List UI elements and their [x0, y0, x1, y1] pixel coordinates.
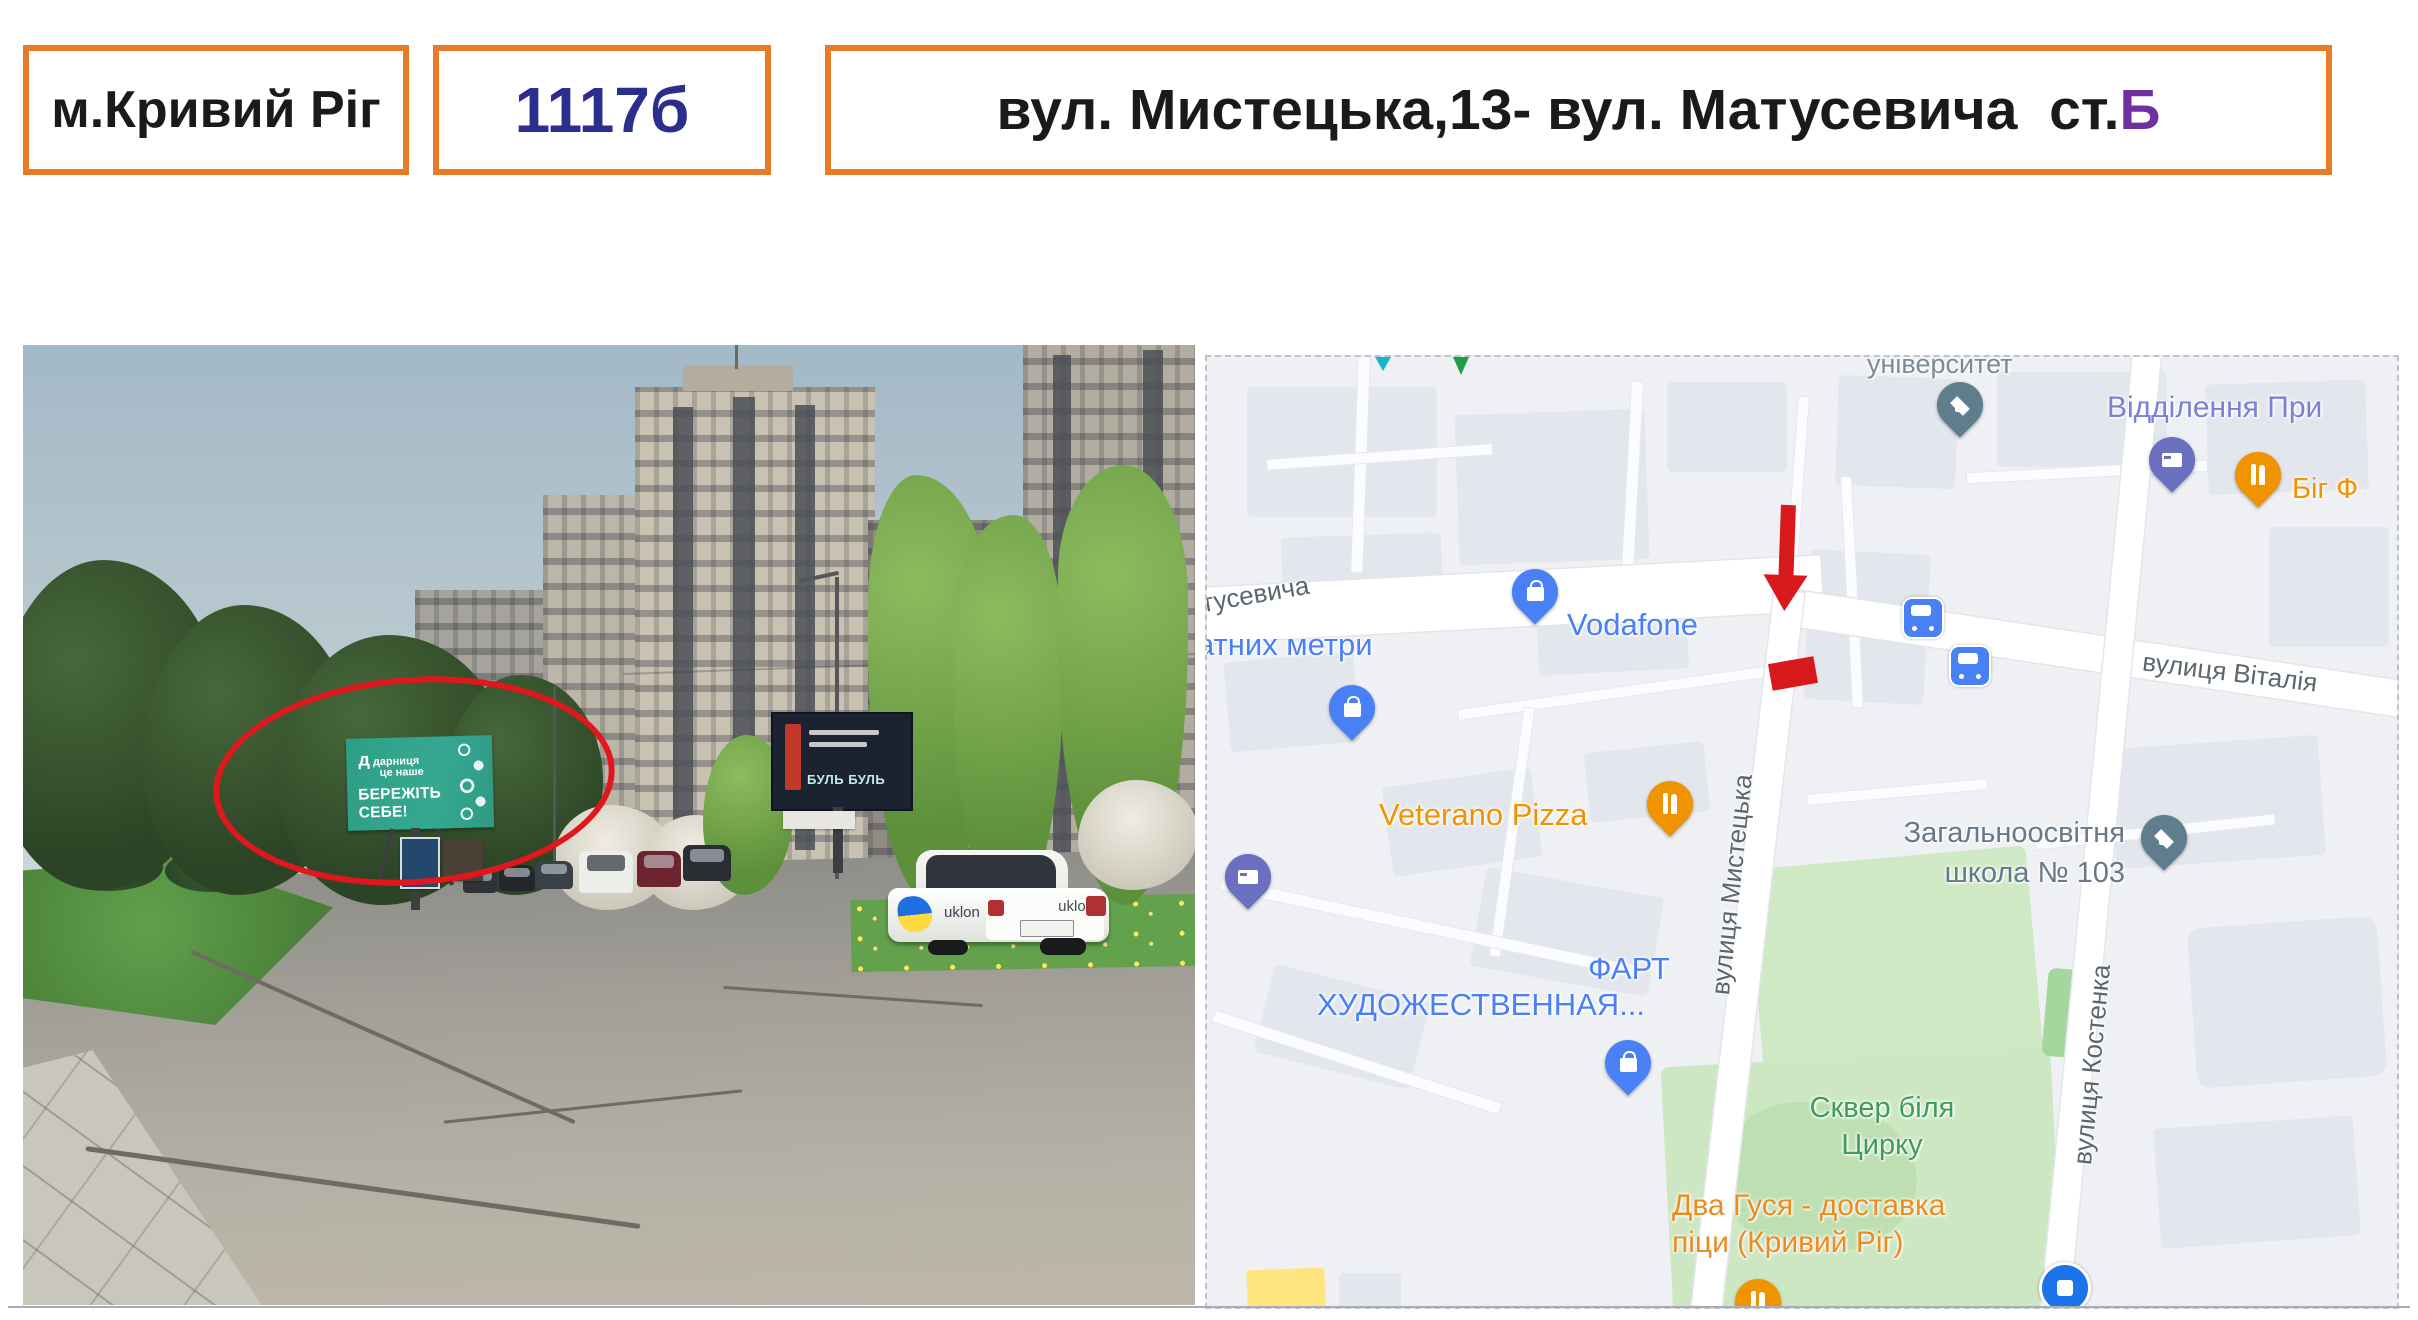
- cyan-pin-icon: [1375, 357, 1391, 371]
- metry-label: атних метри: [1205, 627, 1373, 663]
- big-f-label: Біг Ф: [2292, 473, 2358, 506]
- gusya-label-line1: Два Гуся - доставка: [1672, 1189, 1945, 1223]
- billboard-2: БУЛЬ БУЛЬ: [771, 712, 913, 811]
- vodafone-pin-icon: [1502, 559, 1567, 624]
- building-roof: [683, 365, 793, 391]
- bus-stop-icon: [1949, 645, 1991, 687]
- yellow-building: [1246, 1268, 1325, 1309]
- shop-pin-icon: [1319, 675, 1384, 740]
- taxi-rear-window: [926, 855, 1056, 892]
- university-label: університет: [1867, 355, 2013, 380]
- parked-car: [535, 861, 573, 889]
- address-label: вул. Мистецька,13- вул. Матусевича ст.: [997, 77, 2120, 143]
- taillight: [1086, 896, 1106, 916]
- skver-label-line1: Сквер біля: [1777, 1092, 1987, 1125]
- post-office-pin-2-icon: [1215, 844, 1280, 909]
- location-map: тусевича вулиця Мистецька вулиця Віталія…: [1205, 355, 2399, 1309]
- vodafone-label: Vodafone: [1567, 607, 1698, 643]
- place-circle-icon: [2039, 1262, 2091, 1309]
- page-bottom-line: [8, 1306, 2410, 1308]
- antenna: [735, 345, 738, 369]
- board-id-box: 1117б: [433, 45, 771, 175]
- big-f-restaurant-pin-icon: [2225, 442, 2290, 507]
- city-box: м.Кривий Ріг: [23, 45, 409, 175]
- city-label: м.Кривий Ріг: [51, 80, 381, 140]
- license-plate: [1020, 920, 1074, 937]
- school-pin-icon: [2131, 805, 2196, 870]
- gusya-label-line2: піци (Кривий Ріг): [1672, 1226, 1904, 1260]
- uklon-taxi: uklon uklon: [888, 850, 1114, 956]
- wheel: [1040, 938, 1086, 955]
- billboard-2-text: БУЛЬ БУЛЬ: [807, 772, 885, 787]
- school-label-line2: школа № 103: [1827, 857, 2125, 890]
- address-box: вул. Мистецька,13- вул. Матусевича ст.Б: [825, 45, 2332, 175]
- university-pin-icon: [1927, 372, 1992, 437]
- shop-pin-2-icon: [1595, 1030, 1660, 1095]
- dark-car: [683, 845, 731, 881]
- white-car: [579, 851, 633, 893]
- veterano-label: Veterano Pizza: [1379, 797, 1588, 833]
- veterano-pin-icon: [1637, 771, 1702, 836]
- small-sign: [783, 811, 855, 829]
- post-office-pin-icon: [2139, 427, 2204, 492]
- school-label-line1: Загальноосвітня: [1827, 817, 2125, 850]
- station-letter-label: Б: [2120, 77, 2161, 143]
- billboard-2-graphic: [785, 724, 801, 790]
- wheel: [928, 940, 968, 955]
- maroon-car: [637, 851, 681, 887]
- street-photo: БУЛЬ БУЛЬ ддарниця це наше БЕРЕЖІТЬ СЕБЕ…: [23, 345, 1195, 1305]
- post-office-label: Відділення При: [2107, 391, 2322, 425]
- taxi-brand-side: uklon: [944, 904, 980, 921]
- green-pin-icon: [1453, 357, 1469, 375]
- fart-label-line1: ФАРТ: [1588, 951, 1670, 987]
- bus-stop-icon: [1902, 597, 1944, 639]
- fart-label-line2: ХУДОЖЕСТВЕННАЯ...: [1317, 987, 1645, 1023]
- location-arrow-icon: [1762, 504, 1810, 617]
- board-id-label: 1117б: [515, 73, 690, 147]
- taillight: [988, 900, 1004, 916]
- skver-label-line2: Цирку: [1777, 1129, 1987, 1162]
